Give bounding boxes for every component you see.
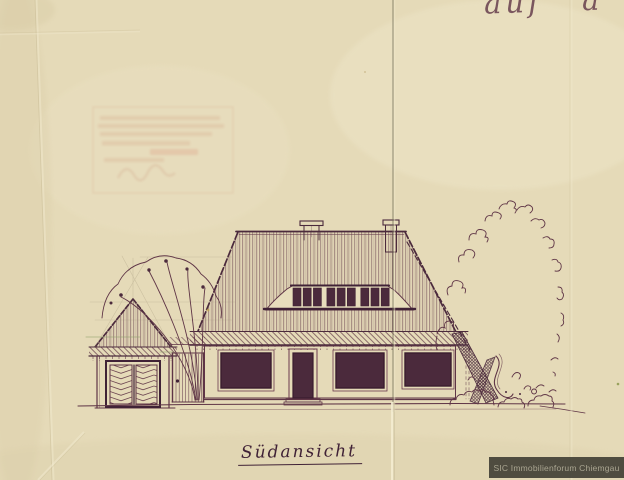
window-middle (333, 350, 387, 391)
dormer (264, 286, 415, 311)
window-right (402, 350, 454, 389)
main-eave (190, 332, 468, 351)
drawing-canvas (0, 0, 624, 480)
drawing-title-label: Südansicht (238, 441, 362, 466)
watermark-text: SIC Immobilienforum Chiemgau (493, 463, 619, 478)
watermark-bar: SIC Immobilienforum Chiemgau (489, 457, 624, 478)
chimney-right (383, 220, 399, 252)
window-left (218, 350, 274, 391)
dormer-windows (293, 288, 389, 306)
scanned-elevation-drawing: auf a Südansicht SIC Immobilienforum Chi… (0, 0, 624, 480)
